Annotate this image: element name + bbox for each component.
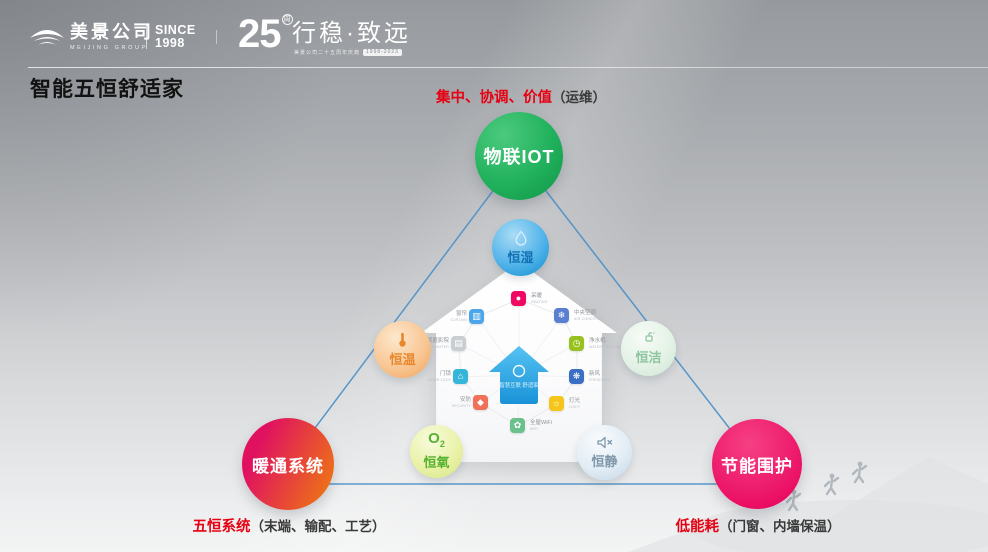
water-treatment-icon: ◷: [569, 336, 584, 351]
light-label: 灯光LIGHT: [569, 398, 621, 409]
app-web-lines: [0, 0, 988, 552]
fresh-air-icon: ❋: [569, 369, 584, 384]
fresh-air-label: 新风FRESH AIR: [589, 371, 641, 382]
constant-humidity-sphere: 恒湿: [492, 219, 549, 276]
water-drop-icon: [513, 230, 529, 246]
air-condition-icon: ❄: [554, 308, 569, 323]
smart-home-hub-icon: 智慧互联 舒适家: [487, 345, 551, 405]
hvac-annotation: 五恒系统（末端、输配、工艺）: [183, 515, 395, 536]
constant-temperature-sphere: 恒温: [374, 321, 431, 378]
slide: 美景公司 MEIJING GROUP SINCE 1998 25周 行稳·致远 …: [0, 0, 988, 552]
light-icon: ☼: [549, 396, 564, 411]
constant-oxygen-sphere: O2 恒氧: [410, 425, 463, 478]
home-theater-icon: ▤: [451, 336, 466, 351]
door-lock-icon: ⌂: [453, 369, 468, 384]
constant-clean-sphere: 恒洁: [621, 321, 676, 376]
hvac-node: 暖通系统: [242, 418, 334, 510]
constant-quiet-sphere: 恒静: [577, 425, 632, 480]
wifi-label: 全屋WiFiWIFI: [530, 420, 582, 431]
wifi-icon: ✿: [510, 418, 525, 433]
thermometer-icon: [395, 332, 410, 348]
hub-title: 智慧互联 舒适家: [499, 381, 539, 389]
envelope-annotation: 低能耗（门窗、内墙保温）: [648, 515, 868, 536]
heating-label: 采暖HEATING: [531, 293, 583, 304]
curtain-label: 窗帘CURTAIN: [415, 311, 467, 322]
o2-icon: O2: [428, 432, 445, 451]
air-condition-label: 中央空调AIR CONDITION: [574, 310, 626, 321]
iot-annotation: 集中、协调、价值（运维）: [390, 86, 652, 107]
security-icon: ◆: [473, 395, 488, 410]
clean-brush-icon: [641, 331, 657, 346]
curtain-icon: ▥: [469, 309, 484, 324]
envelope-node: 节能围护: [712, 419, 802, 509]
speaker-mute-icon: [596, 435, 613, 450]
security-label: 安防SECURITY: [419, 397, 471, 408]
iot-node: 物联IOT: [475, 112, 563, 200]
heating-icon: ●: [511, 291, 526, 306]
